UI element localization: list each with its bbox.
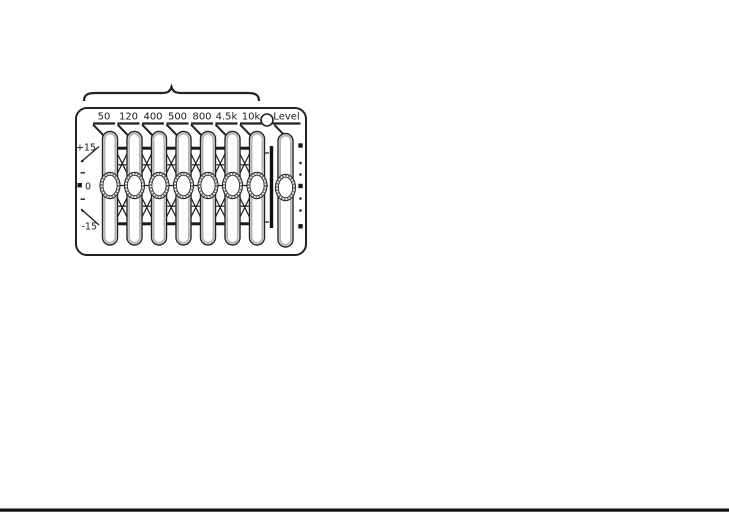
band-label-3: 400 — [143, 112, 162, 123]
zero-square-marker — [78, 183, 82, 187]
right-scale-square-top — [298, 143, 302, 147]
level-label: Level — [273, 112, 299, 123]
eq-band-slider-50[interactable] — [100, 132, 120, 246]
scale-plus15-label: +15 — [76, 143, 96, 154]
eq-band-slider-120[interactable] — [125, 132, 145, 246]
band-label-1: 50 — [98, 112, 111, 123]
eq-band-slider-4.5k[interactable] — [223, 132, 243, 246]
grouping-brace — [84, 87, 259, 101]
eq-band-slider-10k[interactable] — [247, 132, 267, 246]
eq-band-slider-800[interactable] — [198, 132, 218, 246]
band-label-5: 800 — [192, 112, 211, 123]
right-scale-square-mid — [298, 184, 302, 188]
bottom-page-rule — [0, 509, 729, 512]
separator-bar — [270, 146, 273, 228]
right-scale-square-bottom — [298, 224, 302, 228]
band-label-6: 4.5k — [216, 112, 238, 123]
band-label-7: 10k — [242, 112, 261, 123]
level-slider[interactable] — [276, 134, 296, 248]
eq-band-slider-500[interactable] — [174, 132, 194, 246]
equalizer-diagram: +15 0 -15 50 120 400 500 800 4.5k 10k — [0, 0, 729, 517]
eq-band-slider-400[interactable] — [149, 132, 169, 246]
scale-zero-label: 0 — [85, 182, 91, 193]
scale-minus15-label: -15 — [81, 222, 97, 233]
band-label-2: 120 — [119, 112, 138, 123]
circle-marker — [261, 114, 273, 126]
band-label-4: 500 — [168, 112, 187, 123]
